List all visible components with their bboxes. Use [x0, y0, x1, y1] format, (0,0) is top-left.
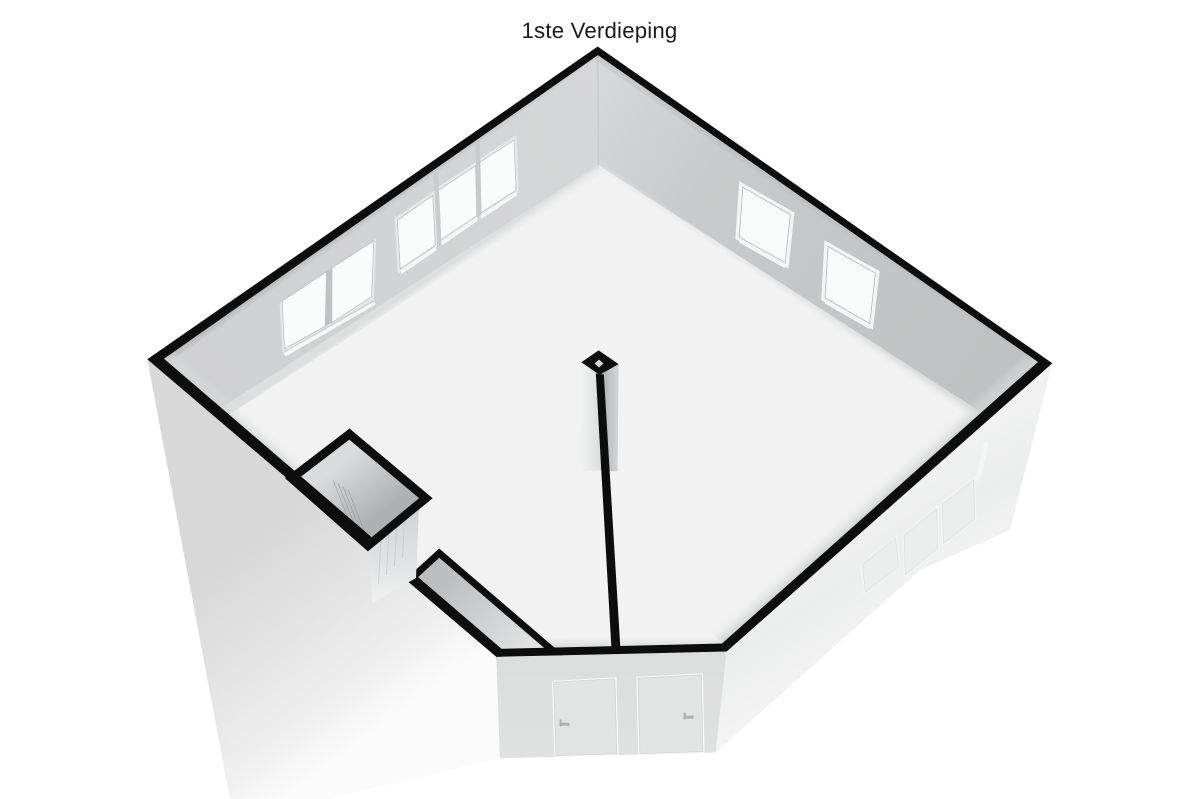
svg-text:1ste Verdieping: 1ste Verdieping — [522, 18, 678, 43]
